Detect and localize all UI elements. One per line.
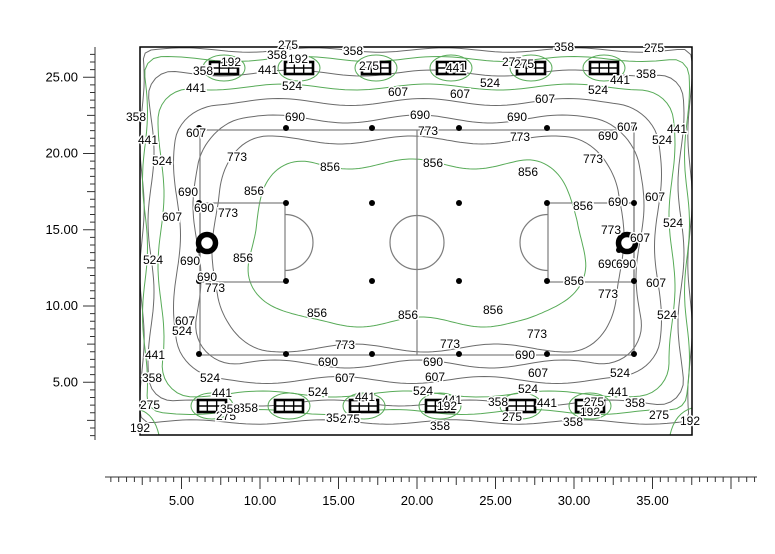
luminaire-symbols xyxy=(198,62,618,412)
y-axis-ruler xyxy=(83,47,95,440)
contour-label: 607 xyxy=(335,371,355,385)
contour-label: 607 xyxy=(617,120,637,134)
grid-dot xyxy=(283,278,289,284)
contour-label: 690 xyxy=(194,201,214,215)
y-axis-tick-label: 15.00 xyxy=(45,222,78,237)
contour-label: 441 xyxy=(446,61,466,75)
contour-label: 441 xyxy=(258,63,278,77)
contour-label: 358 xyxy=(220,402,240,416)
contour-label: 524 xyxy=(308,385,328,399)
contour-label: 275 xyxy=(140,398,160,412)
contour-label: 856 xyxy=(233,251,253,265)
contour-label: 856 xyxy=(573,199,593,213)
contour-label: 856 xyxy=(564,274,584,288)
contour-label: 773 xyxy=(583,152,603,166)
grid-dot xyxy=(369,351,375,357)
contour-label: 524 xyxy=(652,133,672,147)
contour-label: 358 xyxy=(193,64,213,78)
grid-dot xyxy=(544,278,550,284)
contour-label: 524 xyxy=(663,216,683,230)
grid-dot xyxy=(283,351,289,357)
grid-dot xyxy=(631,351,637,357)
contour-label: 773 xyxy=(510,130,530,144)
contour-label: 441 xyxy=(537,396,557,410)
contour-label: 441 xyxy=(186,81,206,95)
contour-label: 856 xyxy=(398,308,418,322)
contour-label: 607 xyxy=(388,85,408,99)
contour-label: 524 xyxy=(143,253,163,267)
contour-label: 358 xyxy=(126,110,146,124)
grid-dot xyxy=(283,200,289,206)
grid-dot xyxy=(456,278,462,284)
contour-label: 358 xyxy=(430,419,450,433)
contour-label: 192 xyxy=(288,52,308,66)
contour-label: 607 xyxy=(630,231,650,245)
contour-label: 275 xyxy=(514,57,534,71)
contour-label: 358 xyxy=(267,48,287,62)
contour-label: 607 xyxy=(646,276,666,290)
contour-label: 192 xyxy=(130,421,150,435)
grid-dot xyxy=(544,351,550,357)
contour-label: 690 xyxy=(608,195,628,209)
contour-label: 358 xyxy=(636,67,656,81)
contour-label: 524 xyxy=(610,366,630,380)
contour-label: 607 xyxy=(535,92,555,106)
pole-dot-icon xyxy=(616,247,622,253)
contour-label: 441 xyxy=(145,348,165,362)
contour-label: 524 xyxy=(518,382,538,396)
grid-dot xyxy=(631,200,637,206)
x-axis-tick-label: 25.00 xyxy=(479,493,512,508)
contour-label: 773 xyxy=(205,281,225,295)
y-axis-tick-label: 20.00 xyxy=(45,146,78,161)
contour-label: 275 xyxy=(584,395,604,409)
contour-label: 607 xyxy=(162,210,182,224)
contour-label: 524 xyxy=(282,79,302,93)
contour-label: 690 xyxy=(180,254,200,268)
contour-label: 856 xyxy=(307,306,327,320)
contour-label: 690 xyxy=(598,129,618,143)
contour-label: 358 xyxy=(488,395,508,409)
right-penalty-arc xyxy=(520,215,548,271)
contour-label: 275 xyxy=(359,59,379,73)
contour-label: 441 xyxy=(212,386,232,400)
contour-label: 524 xyxy=(152,154,172,168)
contour-label: 441 xyxy=(355,390,375,404)
contour-label: 773 xyxy=(218,206,238,220)
contour-label: 358 xyxy=(238,401,258,415)
y-axis-tick-label: 25.00 xyxy=(45,69,78,84)
contour-label: 690 xyxy=(178,185,198,199)
left-penalty-arc xyxy=(285,215,313,271)
grid-dot xyxy=(456,351,462,357)
y-axis-tick-label: 10.00 xyxy=(45,298,78,313)
contour-label: 773 xyxy=(227,150,247,164)
isolux-contour-plot: 3581922753581924414415243582756076075242… xyxy=(0,0,775,554)
contour-chart-svg: 3581922753581924414415243582756076075242… xyxy=(0,0,775,554)
contour-label: 856 xyxy=(244,184,264,198)
contour-label: 773 xyxy=(598,287,618,301)
contour-label: 607 xyxy=(450,87,470,101)
contour-label: 275 xyxy=(644,41,664,55)
contour-label: 358 xyxy=(563,415,583,429)
contour-label: 690 xyxy=(507,110,527,124)
pole-symbols xyxy=(196,235,636,254)
grid-dot xyxy=(544,125,550,131)
contour-label: 690 xyxy=(515,348,535,362)
contour-label: 358 xyxy=(554,40,574,54)
grid-dot xyxy=(369,125,375,131)
grid-dot xyxy=(544,200,550,206)
contour-label: 690 xyxy=(410,108,430,122)
contour-label: 358 xyxy=(625,396,645,410)
contour-label: 275 xyxy=(502,410,522,424)
x-axis-tick-label: 30.00 xyxy=(558,493,591,508)
contour-label: 441 xyxy=(138,133,158,147)
contour-label: 607 xyxy=(186,126,206,140)
contour-line-690 xyxy=(193,115,644,368)
contour-label: 441 xyxy=(610,73,630,87)
grid-dot xyxy=(196,351,202,357)
luminaire-icon-bottom-2 xyxy=(275,400,303,412)
y-axis-tick-label: 5.00 xyxy=(53,374,78,389)
contour-label: 524 xyxy=(200,371,220,385)
contour-label: 856 xyxy=(423,156,443,170)
grid-dot xyxy=(631,278,637,284)
contour-label: 192 xyxy=(221,55,241,69)
contour-label: 192 xyxy=(680,414,700,428)
x-axis-tick-label: 20.00 xyxy=(401,493,434,508)
x-axis-tick-label: 15.00 xyxy=(322,493,355,508)
contour-label: 275 xyxy=(340,412,360,426)
contour-label: 607 xyxy=(645,190,665,204)
pole-dot-icon xyxy=(196,247,202,253)
x-axis-tick-label: 35.00 xyxy=(636,493,669,508)
contour-label: 773 xyxy=(601,223,621,237)
contour-label: 690 xyxy=(318,355,338,369)
x-axis-ruler xyxy=(105,477,757,489)
contour-label: 773 xyxy=(440,337,460,351)
contour-label: 773 xyxy=(335,338,355,352)
pole-symbol xyxy=(196,235,216,254)
contour-label: 524 xyxy=(480,76,500,90)
grid-dot xyxy=(369,278,375,284)
grid-dot xyxy=(456,125,462,131)
grid-dot xyxy=(369,200,375,206)
contour-label: 524 xyxy=(588,83,608,97)
contour-label: 607 xyxy=(425,370,445,384)
x-axis-tick-label: 5.00 xyxy=(169,493,194,508)
contour-label: 856 xyxy=(518,165,538,179)
grid-dot xyxy=(456,200,462,206)
contour-label: 690 xyxy=(616,257,636,271)
contour-label: 690 xyxy=(285,110,305,124)
contour-label: 690 xyxy=(423,355,443,369)
contour-label: 773 xyxy=(527,327,547,341)
contour-label: 856 xyxy=(320,160,340,174)
contour-label: 773 xyxy=(418,124,438,138)
contour-label: 856 xyxy=(483,303,503,317)
contour-label: 358 xyxy=(343,44,363,58)
contour-label: 524 xyxy=(413,384,433,398)
contour-label: 358 xyxy=(142,371,162,385)
contour-label: 192 xyxy=(437,399,457,413)
contour-label: 524 xyxy=(172,324,192,338)
grid-dot xyxy=(283,125,289,131)
contour-label: 275 xyxy=(649,408,669,422)
x-axis-tick-label: 10.00 xyxy=(244,493,277,508)
contour-label: 607 xyxy=(528,366,548,380)
contour-label: 524 xyxy=(657,308,677,322)
